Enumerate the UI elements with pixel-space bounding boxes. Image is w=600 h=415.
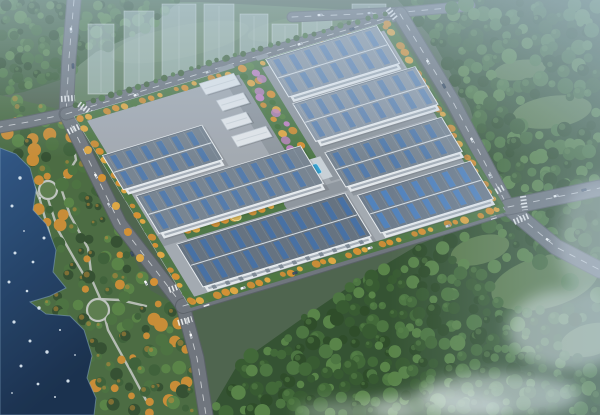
- haze-global: [0, 0, 600, 415]
- aerial-site-rendering: [0, 0, 600, 415]
- atmosphere-overlay: [0, 0, 600, 415]
- industrial-park-aerial-view: [0, 0, 600, 415]
